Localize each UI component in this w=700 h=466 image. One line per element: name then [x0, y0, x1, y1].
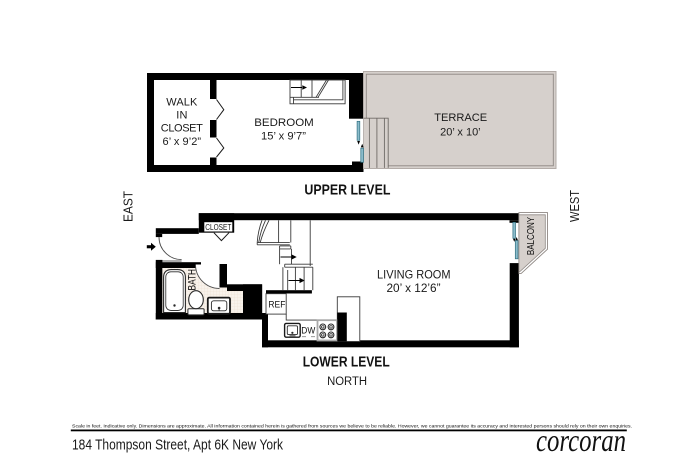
svg-text:REF: REF: [268, 299, 285, 309]
svg-text:6’ x 9’2”: 6’ x 9’2”: [163, 136, 202, 148]
svg-text:CLOSET: CLOSET: [205, 223, 231, 232]
svg-text:15’ x 9’7”: 15’ x 9’7”: [261, 130, 306, 142]
svg-text:LOWER LEVEL: LOWER LEVEL: [303, 354, 390, 370]
svg-text:DW: DW: [301, 325, 315, 335]
svg-text:IN: IN: [176, 110, 187, 122]
svg-text:20’ x 12’6”: 20’ x 12’6”: [387, 282, 441, 295]
svg-text:184 Thompson Street, Apt 6K Ne: 184 Thompson Street, Apt 6K New York: [72, 437, 283, 454]
svg-text:WEST: WEST: [567, 190, 582, 222]
svg-text:corcoran: corcoran: [536, 422, 626, 458]
svg-text:BEDROOM: BEDROOM: [254, 117, 314, 129]
svg-text:CLOSET: CLOSET: [161, 123, 203, 135]
svg-text:BATH: BATH: [186, 269, 198, 291]
svg-text:NORTH: NORTH: [327, 374, 367, 388]
svg-text:WALK: WALK: [166, 97, 198, 109]
svg-text:BALCONY: BALCONY: [526, 217, 537, 255]
svg-text:UPPER LEVEL: UPPER LEVEL: [304, 183, 390, 199]
svg-text:LIVING ROOM: LIVING ROOM: [377, 268, 451, 281]
svg-text:TERRACE: TERRACE: [434, 112, 487, 124]
svg-text:20’ x 10’: 20’ x 10’: [440, 126, 481, 138]
svg-text:EAST: EAST: [120, 191, 135, 222]
